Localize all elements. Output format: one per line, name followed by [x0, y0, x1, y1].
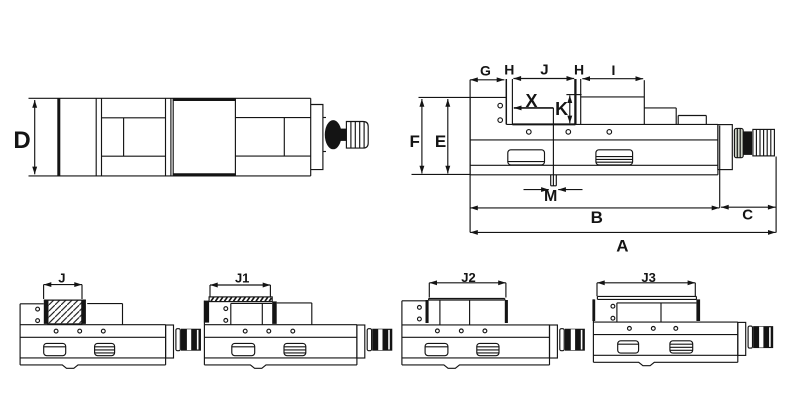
svg-text:F: F [410, 132, 420, 151]
svg-text:X: X [525, 91, 537, 111]
svg-text:C: C [742, 207, 753, 224]
svg-text:B: B [591, 208, 603, 227]
svg-text:A: A [616, 237, 628, 256]
svg-text:D: D [13, 127, 30, 154]
svg-text:I: I [612, 62, 616, 78]
svg-text:K: K [555, 99, 568, 119]
svg-text:J: J [58, 271, 65, 286]
svg-text:H: H [574, 62, 584, 78]
svg-text:J2: J2 [461, 270, 475, 285]
svg-text:J1: J1 [235, 271, 249, 286]
svg-text:H: H [504, 62, 514, 78]
svg-text:E: E [435, 132, 446, 151]
svg-text:G: G [480, 63, 491, 79]
svg-text:M: M [544, 188, 557, 205]
svg-text:J: J [540, 62, 548, 79]
svg-text:J3: J3 [641, 270, 655, 285]
